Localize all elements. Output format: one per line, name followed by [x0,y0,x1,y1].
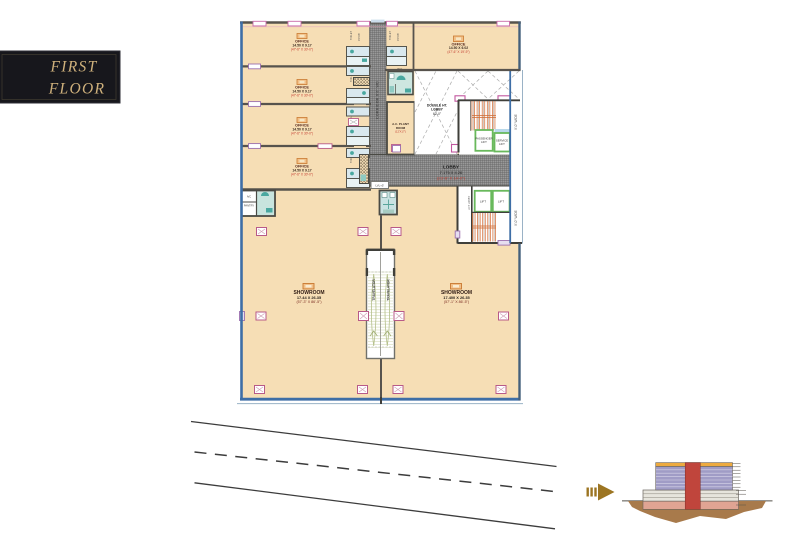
svg-text:(47'-6" X 30'-0"): (47'-6" X 30'-0") [291,93,313,97]
svg-text:(12'X17'): (12'X17') [395,130,406,134]
svg-text:17.400 X 26.35: 17.400 X 26.35 [443,295,470,300]
svg-text:LIFT: LIFT [481,140,487,144]
svg-text:LOBBY: LOBBY [443,165,459,170]
svg-text:17.44 X 26.35: 17.44 X 26.35 [297,295,322,300]
svg-text:LVL+5': LVL+5' [375,183,384,187]
svg-text:9'-0" WIDE: 9'-0" WIDE [514,210,518,226]
svg-text:(47'-6" X 30'-0"): (47'-6" X 30'-0") [291,172,313,176]
svg-text:FLOOR: FLOOR [48,81,105,98]
svg-text:LIFT: LIFT [499,142,505,146]
svg-text:TRAVELATOR: TRAVELATOR [372,279,376,301]
svg-text:4'0"X6': 4'0"X6' [396,33,400,41]
svg-text:FIRST: FIRST [50,59,98,76]
svg-text:(23'-6" X 14'-0"): (23'-6" X 14'-0") [437,176,466,181]
svg-text:(47'-6" X 30'-0"): (47'-6" X 30'-0") [291,131,313,135]
svg-text:TRAVELATOR: TRAVELATOR [387,279,391,301]
svg-text:7.175 X 4.26: 7.175 X 4.26 [440,170,463,175]
svg-text:(47'-6" X 19'-9"): (47'-6" X 19'-9") [447,50,469,54]
svg-text:(57'-1" X 86'-5"): (57'-1" X 86'-5") [444,300,469,304]
svg-text:(57'-3" X 86'-5"): (57'-3" X 86'-5") [296,300,321,304]
svg-text:9'-0" WIDE: 9'-0" WIDE [514,114,518,130]
svg-text:LIFT LOBBY: LIFT LOBBY [468,196,471,210]
svg-text:LIFT: LIFT [498,200,504,204]
svg-text:4'0"X6': 4'0"X6' [357,33,361,41]
svg-text:(47'-6" X 30'-0"): (47'-6" X 30'-0") [291,47,313,51]
svg-text:PANTRY: PANTRY [244,204,255,208]
svg-text:LIFT: LIFT [480,200,486,204]
svg-text:A/C: A/C [247,195,251,199]
svg-text:TOILET: TOILET [388,31,392,40]
svg-text:CORRIDOR 6'6" WD: CORRIDOR 6'6" WD [376,81,380,119]
svg-text:62'-0": 62'-0" [433,112,441,116]
svg-text:TOILET: TOILET [349,31,353,40]
